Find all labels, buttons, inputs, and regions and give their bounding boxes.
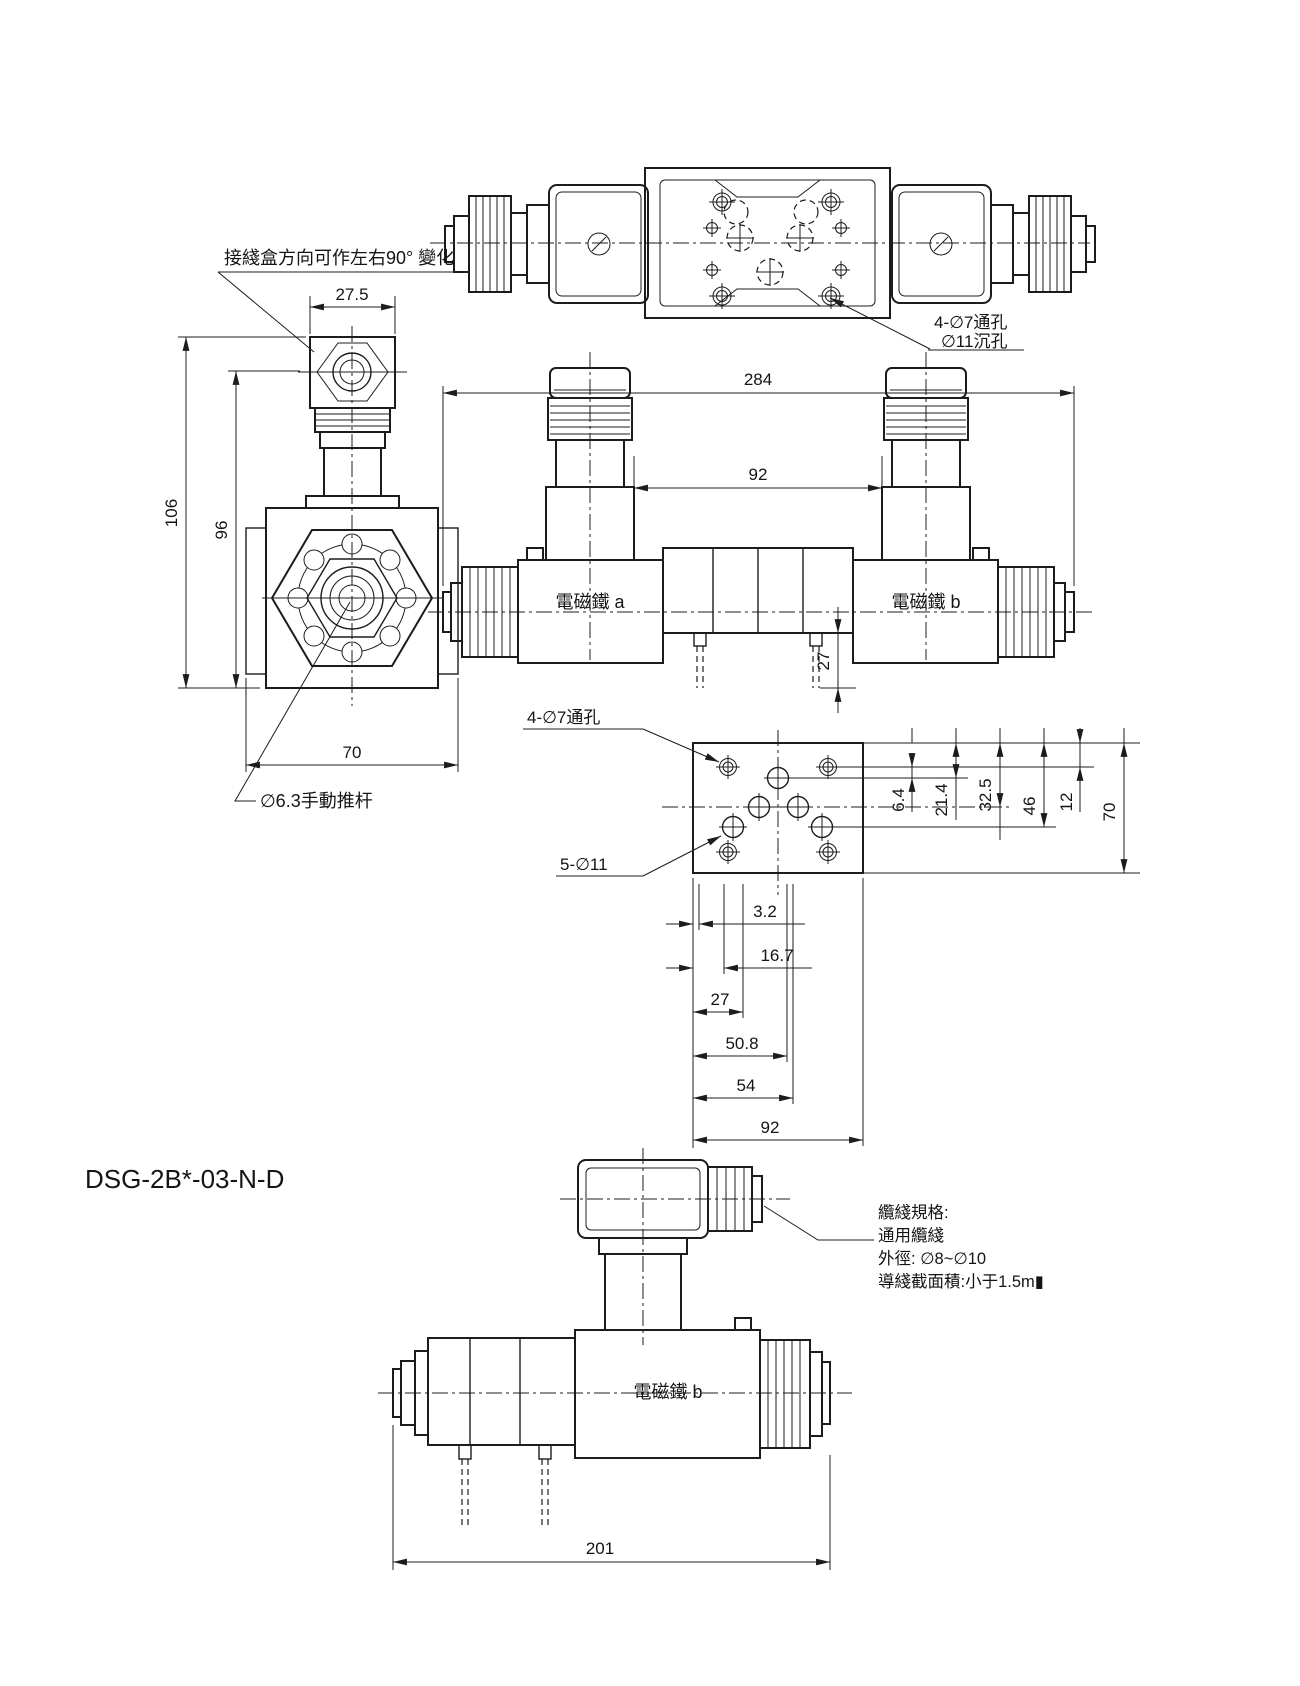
pilot-holes-top [703, 219, 850, 279]
front-view: 284 92 電磁鐵 a 電磁鐵 b [428, 352, 1092, 713]
din-connector-b [882, 352, 970, 660]
plate-dim-54: 54 [737, 1076, 756, 1095]
dim-body-width: 70 [343, 743, 362, 762]
plate-dim-46: 46 [1020, 797, 1039, 816]
drawing-sheet: 4-∅7通孔 ∅11沉孔 接綫盒方向可作左右90° 變化 27.5 [0, 0, 1300, 1686]
cable-gland-single [760, 1340, 830, 1448]
plate-dim-21-4: 21.4 [932, 783, 951, 816]
side-view: 接綫盒方向可作左右90° 變化 27.5 [162, 248, 468, 811]
plate-dim-70: 70 [1100, 803, 1119, 822]
mounting-studs [694, 633, 822, 688]
top-hole-note-line1: 4-∅7通孔 [934, 313, 1007, 332]
cable-note-line3: 外徑: ∅8~∅10 [878, 1249, 986, 1268]
plate-dim-6-4: 6.4 [889, 788, 908, 812]
solenoid-a-label: 電磁鐵 a [555, 592, 625, 612]
cable-note-line4: 導綫截面積:小于1.5m▮ [878, 1272, 1044, 1291]
solenoid-b-single-label: 電磁鐵 b [633, 1382, 702, 1402]
valve-body-single [428, 1338, 575, 1445]
junction-box-note: 接綫盒方向可作左右90° 變化 [224, 248, 454, 268]
dim-connector-span: 92 [749, 465, 768, 484]
plate-dim-50-8: 50.8 [725, 1034, 758, 1053]
plate-dim-27: 27 [711, 990, 730, 1009]
top-view: 4-∅7通孔 ∅11沉孔 [430, 168, 1095, 351]
manual-pin-note: ∅6.3手動推杆 [260, 791, 373, 811]
top-hole-note-line2: ∅11沉孔 [941, 332, 1007, 351]
bottom-view: 纜綫規格: 通用纜綫 外徑: ∅8~∅10 導綫截面積:小于1.5m▮ 電磁鐵 … [378, 1148, 1044, 1570]
cable-gland-a-front [443, 567, 518, 657]
plate-dim-12: 12 [1057, 793, 1076, 812]
plate-dim-32-5: 32.5 [976, 778, 995, 811]
model-title: DSG-2B*-03-N-D [85, 1164, 284, 1194]
plate-dim-92: 92 [761, 1118, 780, 1137]
mounting-plate-view: 4-∅7通孔 5-∅11 6.4 21.4 32.5 46 [523, 708, 1140, 1148]
dim-single-length: 201 [586, 1539, 614, 1558]
cable-gland-b-top [991, 196, 1095, 292]
dim-connector-width: 27.5 [335, 285, 368, 304]
cable-gland-a-top [445, 196, 549, 292]
plate-dim-3-2: 3.2 [753, 902, 777, 921]
counterbore-holes-top [709, 189, 844, 309]
din-connector-single [560, 1148, 790, 1345]
plate-port-hole-note: 5-∅11 [560, 855, 608, 874]
cable-note-line2: 通用纜綫 [878, 1226, 944, 1245]
solenoid-b-label: 電磁鐵 b [891, 592, 960, 612]
plate-dim-16-7: 16.7 [760, 946, 793, 965]
valve-drawing: 4-∅7通孔 ∅11沉孔 接綫盒方向可作左右90° 變化 27.5 [0, 0, 1300, 1686]
plate-through-hole-note: 4-∅7通孔 [527, 708, 600, 727]
dim-overall-length: 284 [744, 370, 772, 389]
dim-sub-height: 96 [212, 521, 231, 540]
cable-note-line1: 纜綫規格: [878, 1203, 949, 1222]
din-connector-a [546, 352, 634, 660]
dim-overall-height: 106 [162, 499, 181, 527]
dim-stud-height: 27 [814, 652, 833, 671]
